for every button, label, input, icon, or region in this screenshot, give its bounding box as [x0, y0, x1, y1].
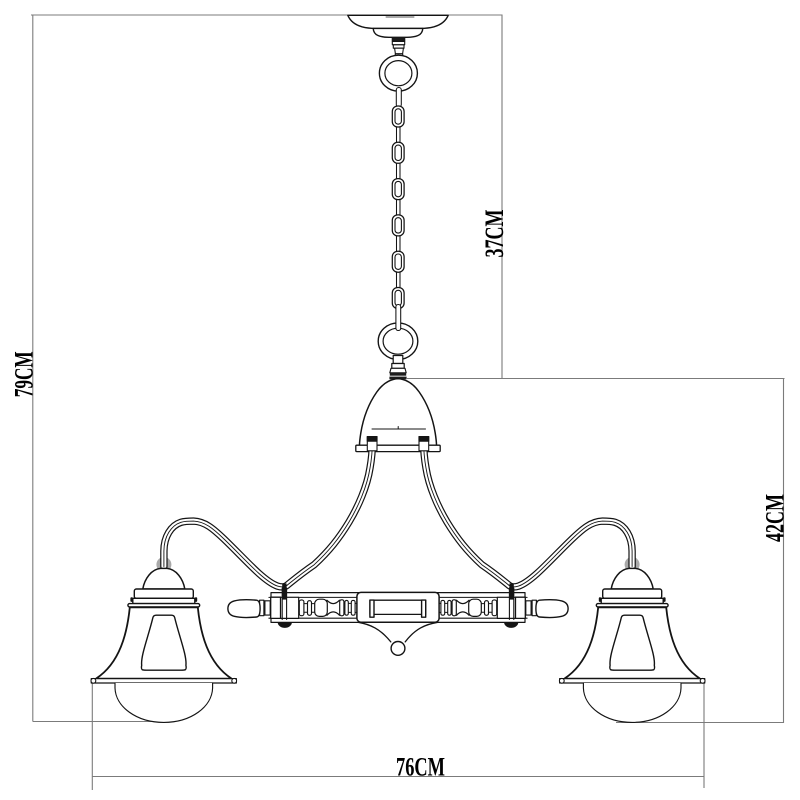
svg-text:42CM: 42CM — [760, 494, 789, 542]
svg-text:76CM: 76CM — [396, 753, 445, 782]
svg-text:79CM: 79CM — [10, 351, 39, 397]
svg-text:37CM: 37CM — [480, 210, 509, 258]
